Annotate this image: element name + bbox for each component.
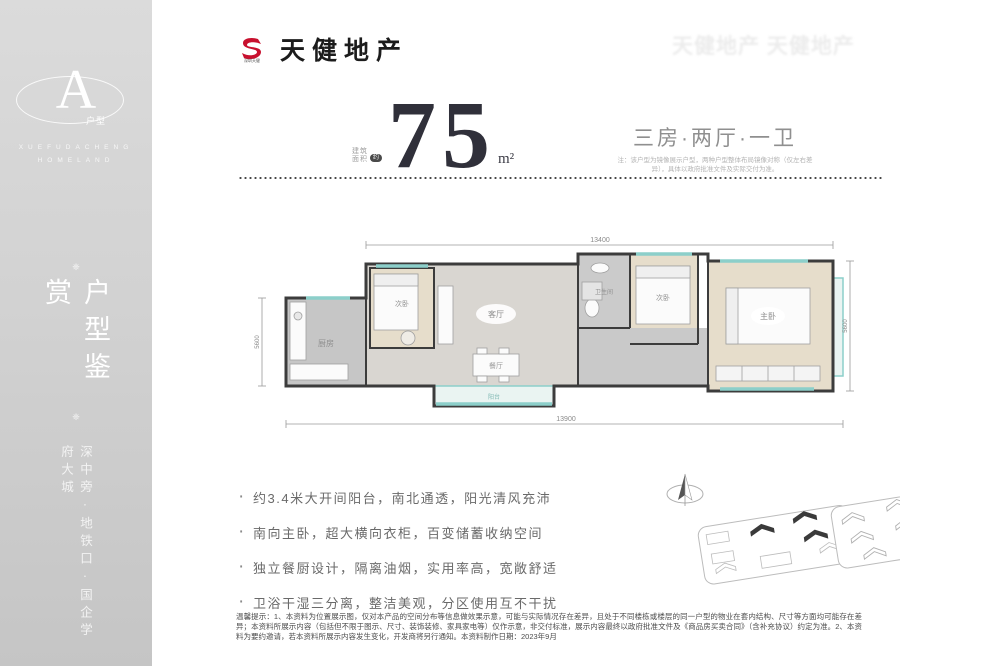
area-value: 75 [388, 96, 496, 174]
room-label-bedroom2: 次卧 [656, 293, 670, 302]
sidebar: A 户型 XUEFUDACHENG HOMELAND ❈ 户型鉴赏 ❈ 深中旁·… [0, 0, 152, 666]
unit-type-badge: A 户型 XUEFUDACHENG HOMELAND [0, 70, 152, 140]
layout-block: 三房·两厅·一卫 注：该户型为镜像展示户型，两种户型整体布局镜像对称（仅左右差 … [610, 122, 820, 174]
ornament-bottom-icon: ❈ [0, 412, 152, 423]
sidebar-vertical-title-text: 户型鉴赏 [37, 278, 115, 418]
area-label-line2: 面积 [352, 156, 368, 164]
area-approx-tag: 约 [370, 154, 382, 162]
sidebar-vertical-subtitle-text: 深中旁·地铁口·国企学府大城 [57, 445, 95, 650]
room-label-master: 主卧 [760, 311, 776, 321]
ornament-top-icon: ❈ [0, 262, 152, 273]
watermark-text: 天健地产 天健地产 [672, 30, 892, 60]
brand-logo: 深圳天健 天健地产 [238, 32, 408, 66]
disclaimer-text: 温馨提示：1、本资料为位置展示图，仅对本产品的空间分布等信息做效果示意，可能与实… [236, 612, 862, 642]
layout-note-line1: 注：该户型为镜像展示户型，两种户型整体布局镜像对称（仅左右差 [610, 157, 820, 166]
room-label-dining: 餐厅 [489, 361, 503, 370]
keyplan-panel-right [830, 491, 900, 569]
dim-left-label: 5600 [255, 335, 261, 349]
corridor-floor [578, 328, 708, 386]
headline: 建筑 面积 约 75 m² 三房·两厅·一卫 注：该户型为镜像展示户型，两种户型… [352, 92, 892, 176]
badge-en-line1: XUEFUDACHENG [0, 144, 152, 151]
dim-bottom-label: 13900 [556, 416, 576, 423]
sidebar-vertical-subtitle: 深中旁·地铁口·国企学府大城 [0, 445, 152, 650]
room-label-kitchen: 厨房 [318, 338, 334, 348]
room-label-bath: 卫生间 [595, 288, 613, 296]
area-unit: m² [498, 151, 514, 168]
brand-name: 天健地产 [280, 31, 408, 67]
layout-type: 三房·两厅·一卫 [610, 122, 820, 152]
brand-mark-icon: 深圳天健 [238, 35, 266, 63]
floorplan-flyer-page: A 户型 XUEFUDACHENG HOMELAND ❈ 户型鉴赏 ❈ 深中旁·… [0, 0, 1000, 666]
compass-icon [667, 474, 703, 506]
room-label-living: 客厅 [488, 309, 504, 319]
area-label: 建筑 面积 [352, 148, 368, 164]
room-label-balcony: 阳台 [488, 393, 500, 401]
badge-label: 户型 [86, 114, 106, 127]
badge-letter: A [0, 62, 152, 118]
area-group: 建筑 面积 约 75 m² [352, 96, 514, 174]
area-label-line1: 建筑 [352, 148, 368, 156]
feature-item: 卫浴干湿三分离，整洁美观，分区使用互不干扰 [238, 593, 678, 612]
feature-item: 约3.4米大开间阳台，南北通透，阳光清风充沛 [238, 488, 678, 507]
room-label-bedroom1: 次卧 [395, 299, 409, 308]
feature-item: 独立餐厨设计，隔离油烟，实用率高，宽敞舒适 [238, 558, 678, 577]
layout-note-line2: 异），具体以政府批准文件及实际交付为准。 [610, 166, 820, 175]
sidebar-vertical-title: 户型鉴赏 [0, 278, 152, 418]
site-keyplan [645, 462, 900, 592]
feature-item: 南向主卧，超大横向衣柜，百变储蓄收纳空间 [238, 523, 678, 542]
floorplan: 厨房 次卧 客厅 餐厅 卫生间 次卧 阳台 主卧 [248, 236, 858, 434]
features-list: 约3.4米大开间阳台，南北通透，阳光清风充沛 南向主卧，超大横向衣柜，百变储蓄收… [238, 488, 678, 628]
brand-mark-subtext: 深圳天健 [238, 58, 266, 64]
dim-right-label: 5600 [843, 319, 849, 333]
badge-en-line2: HOMELAND [0, 157, 152, 164]
dim-top-label: 13400 [590, 237, 610, 244]
layout-note: 注：该户型为镜像展示户型，两种户型整体布局镜像对称（仅左右差 异），具体以政府批… [610, 157, 820, 174]
dotted-divider [238, 176, 882, 180]
